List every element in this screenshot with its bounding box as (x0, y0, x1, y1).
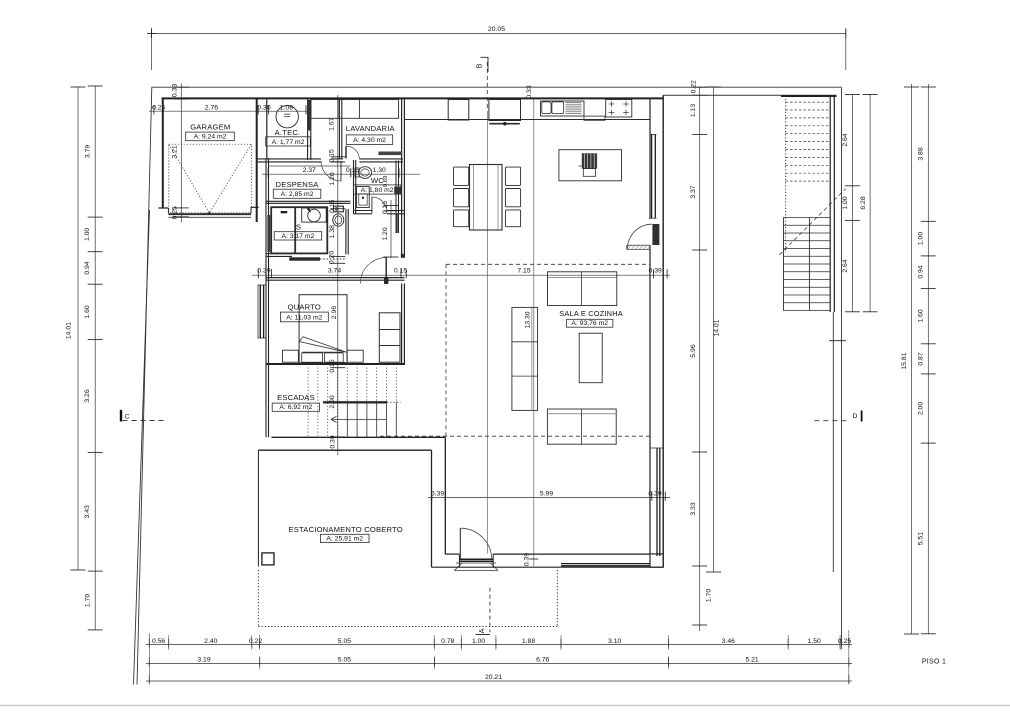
svg-text:1.88: 1.88 (522, 638, 535, 645)
svg-text:1.60: 1.60 (84, 305, 91, 318)
svg-text:1.00: 1.00 (472, 638, 485, 645)
svg-text:0.22: 0.22 (249, 638, 262, 645)
svg-text:0.30: 0.30 (257, 104, 270, 111)
svg-text:5.05: 5.05 (338, 656, 351, 663)
svg-text:B: B (475, 63, 484, 68)
svg-text:0.15: 0.15 (382, 201, 389, 214)
svg-text:7.15: 7.15 (517, 267, 530, 274)
svg-text:A: 4,30 m2: A: 4,30 m2 (353, 137, 386, 144)
svg-text:PISO 1: PISO 1 (922, 659, 946, 666)
svg-text:2.64: 2.64 (842, 259, 849, 272)
svg-text:13.30: 13.30 (525, 311, 532, 328)
svg-text:3.19: 3.19 (197, 656, 210, 663)
svg-text:A: 2,85 m2: A: 2,85 m2 (281, 191, 314, 198)
svg-text:3.88: 3.88 (918, 147, 925, 160)
svg-text:0.87: 0.87 (918, 352, 925, 365)
svg-text:5.21: 5.21 (745, 656, 758, 663)
svg-text:3.43: 3.43 (84, 505, 91, 518)
svg-text:20.21: 20.21 (485, 674, 502, 681)
svg-text:0.15: 0.15 (394, 267, 407, 274)
svg-text:0.20: 0.20 (328, 251, 335, 264)
svg-text:6.76: 6.76 (536, 656, 549, 663)
svg-text:5.05: 5.05 (338, 638, 351, 645)
svg-text:0.78: 0.78 (441, 638, 454, 645)
svg-text:14.01: 14.01 (713, 319, 720, 336)
svg-text:2.40: 2.40 (204, 638, 217, 645)
svg-text:14.01: 14.01 (66, 322, 73, 339)
svg-text:A.TEC.: A.TEC. (275, 128, 301, 137)
svg-text:3.46: 3.46 (722, 638, 735, 645)
svg-text:SALA E COZINHA: SALA E COZINHA (559, 309, 623, 318)
svg-text:1.00: 1.00 (918, 232, 925, 245)
svg-text:3.74: 3.74 (328, 267, 341, 274)
svg-text:1.70: 1.70 (85, 594, 92, 607)
svg-text:ESCADAS: ESCADAS (277, 393, 315, 402)
svg-text:0.15: 0.15 (328, 149, 335, 162)
svg-text:1.70: 1.70 (706, 589, 713, 602)
svg-text:A: 9,24 m2: A: 9,24 m2 (194, 134, 227, 141)
svg-text:LAVANDARIA: LAVANDARIA (346, 124, 396, 133)
svg-text:5.96: 5.96 (690, 344, 697, 357)
svg-text:1.20: 1.20 (382, 227, 389, 240)
svg-text:1.00: 1.00 (842, 196, 849, 209)
svg-text:1.50: 1.50 (808, 638, 821, 645)
svg-text:A: 1,80 m2: A: 1,80 m2 (361, 187, 394, 194)
svg-text:0.33: 0.33 (171, 84, 178, 97)
svg-text:A: 11,03 m2: A: 11,03 m2 (286, 315, 322, 322)
svg-text:2.96: 2.96 (331, 306, 338, 319)
svg-text:1.30: 1.30 (373, 167, 386, 174)
svg-text:2.37: 2.37 (303, 167, 316, 174)
svg-text:0.33: 0.33 (526, 85, 533, 98)
svg-text:2.00: 2.00 (918, 402, 925, 415)
svg-text:D: D (853, 413, 858, 420)
svg-text:3.79: 3.79 (85, 145, 92, 158)
svg-text:A: A (477, 628, 486, 633)
svg-text:A: 6,92 m2: A: 6,92 m2 (279, 404, 312, 411)
svg-text:20.05: 20.05 (488, 26, 505, 33)
svg-text:1.38: 1.38 (329, 225, 336, 238)
svg-text:5.99: 5.99 (540, 490, 553, 497)
svg-text:A: 93,76 m2: A: 93,76 m2 (571, 320, 608, 327)
svg-text:1.13: 1.13 (690, 104, 697, 117)
svg-text:0.94: 0.94 (918, 265, 925, 278)
svg-text:QUARTO: QUARTO (288, 302, 321, 311)
svg-text:GARAGEM: GARAGEM (190, 123, 230, 132)
svg-text:1.00: 1.00 (84, 228, 91, 241)
svg-text:DESPENSA: DESPENSA (276, 180, 320, 189)
svg-text:0.39: 0.39 (431, 490, 444, 497)
svg-text:WC: WC (371, 176, 384, 185)
svg-text:0.56: 0.56 (152, 638, 165, 645)
svg-text:ESTACIONAMENTO COBERTO: ESTACIONAMENTO COBERTO (289, 525, 403, 534)
svg-text:3.21: 3.21 (172, 145, 179, 158)
svg-text:3.33: 3.33 (690, 502, 697, 515)
svg-text:6.28: 6.28 (860, 196, 867, 209)
svg-text:15.81: 15.81 (901, 352, 908, 369)
svg-text:2.76: 2.76 (205, 104, 218, 111)
svg-text:2.64: 2.64 (842, 133, 849, 146)
svg-text:3.26: 3.26 (84, 389, 91, 402)
svg-text:0.39: 0.39 (649, 267, 662, 274)
svg-text:A: 3,17 m2: A: 3,17 m2 (282, 233, 315, 240)
svg-text:5.51: 5.51 (918, 532, 925, 545)
svg-text:1.60: 1.60 (918, 309, 925, 322)
svg-text:1.67: 1.67 (328, 117, 335, 130)
svg-text:A: 1,77 m2: A: 1,77 m2 (272, 139, 305, 146)
svg-text:C: C (125, 413, 130, 420)
svg-text:0.94: 0.94 (84, 261, 91, 274)
svg-text:S: S (296, 223, 301, 232)
svg-text:0.22: 0.22 (691, 80, 698, 93)
svg-text:A: 25,91 m2: A: 25,91 m2 (326, 535, 363, 542)
svg-text:3.37: 3.37 (690, 185, 697, 198)
svg-text:0.15: 0.15 (329, 359, 336, 372)
svg-text:3.10: 3.10 (608, 638, 621, 645)
